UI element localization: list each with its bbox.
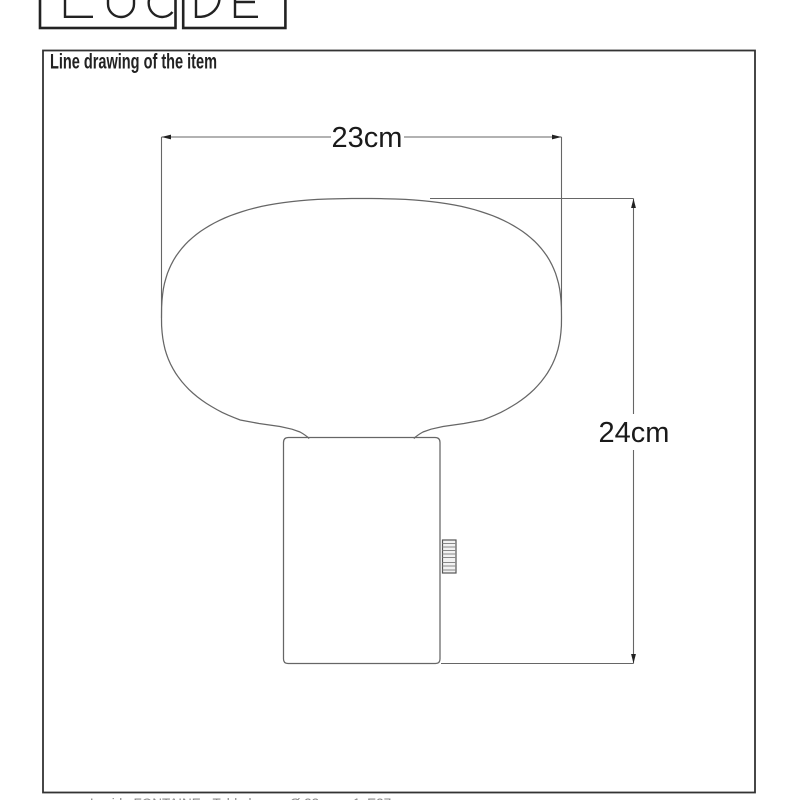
svg-text:Lucide FONTAINE - Table lamp -: Lucide FONTAINE - Table lamp - Ø 23 cm -… <box>90 796 391 800</box>
svg-text:24cm: 24cm <box>599 417 670 449</box>
svg-text:23cm: 23cm <box>332 122 403 154</box>
svg-text:Line drawing of the item: Line drawing of the item <box>50 51 217 74</box>
